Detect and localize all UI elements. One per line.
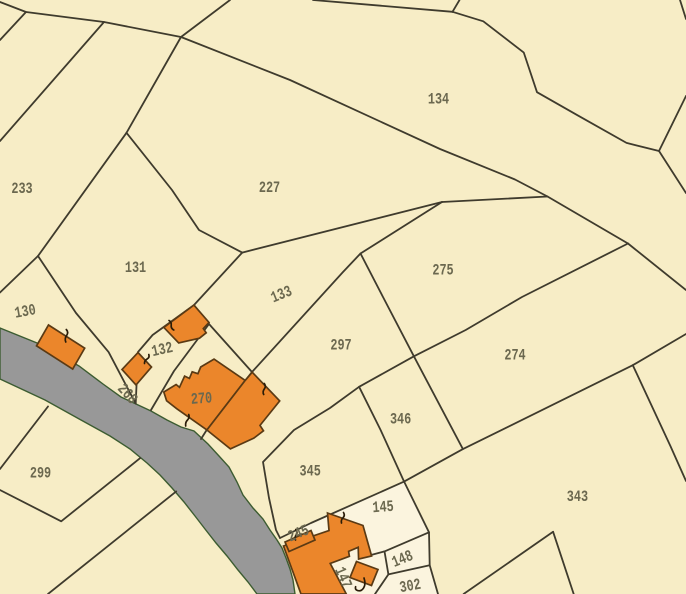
svg-text:145: 145 bbox=[372, 498, 395, 518]
svg-text:227: 227 bbox=[259, 179, 280, 197]
svg-text:346: 346 bbox=[390, 411, 411, 429]
svg-text:134: 134 bbox=[428, 91, 450, 109]
svg-text:299: 299 bbox=[30, 465, 51, 483]
svg-text:275: 275 bbox=[432, 262, 453, 280]
svg-text:131: 131 bbox=[125, 259, 146, 277]
svg-text:274: 274 bbox=[504, 347, 526, 365]
svg-text:343: 343 bbox=[567, 488, 588, 506]
svg-text:270: 270 bbox=[190, 390, 213, 410]
svg-text:345: 345 bbox=[300, 463, 321, 481]
svg-text:130: 130 bbox=[13, 302, 37, 324]
svg-text:297: 297 bbox=[330, 337, 351, 355]
svg-text:302: 302 bbox=[398, 576, 422, 594]
svg-text:233: 233 bbox=[11, 180, 32, 198]
